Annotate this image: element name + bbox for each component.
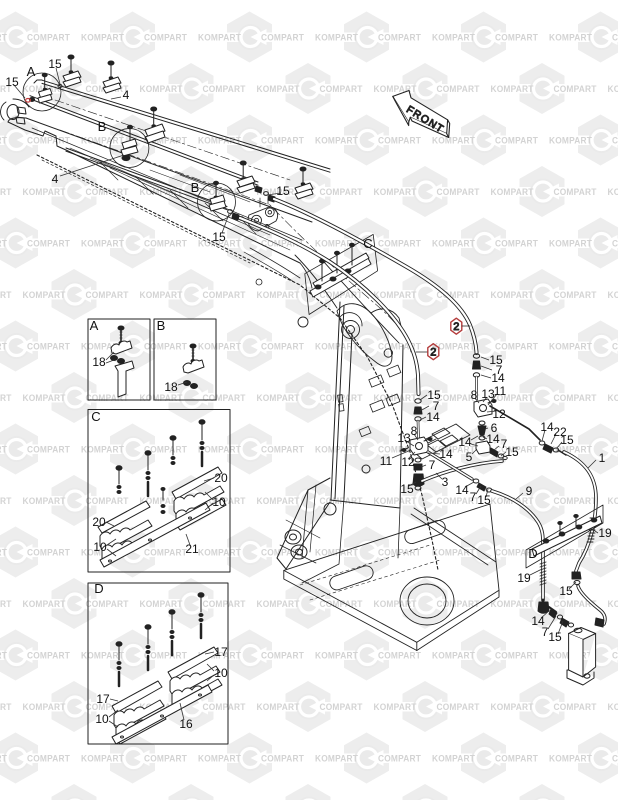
svg-text:8: 8	[471, 388, 478, 402]
svg-text:19: 19	[598, 526, 612, 540]
svg-text:14: 14	[455, 483, 469, 497]
svg-text:19: 19	[517, 571, 531, 585]
svg-text:14: 14	[439, 447, 453, 461]
svg-text:15: 15	[477, 493, 491, 507]
svg-text:20: 20	[92, 515, 106, 529]
svg-text:B: B	[191, 180, 200, 195]
svg-text:7: 7	[470, 490, 477, 504]
svg-text:C: C	[91, 409, 100, 424]
svg-text:2: 2	[453, 321, 459, 333]
svg-text:1: 1	[599, 451, 606, 465]
svg-text:D: D	[94, 581, 103, 596]
svg-text:15: 15	[560, 433, 574, 447]
svg-text:20: 20	[214, 471, 228, 485]
svg-text:B: B	[157, 318, 166, 333]
svg-text:15: 15	[48, 57, 62, 71]
svg-text:4: 4	[123, 88, 130, 102]
svg-text:15: 15	[400, 482, 414, 496]
svg-text:15: 15	[559, 584, 573, 598]
svg-text:18: 18	[164, 380, 178, 394]
svg-text:11: 11	[380, 454, 393, 468]
svg-text:4: 4	[52, 172, 59, 186]
svg-text:2: 2	[430, 347, 436, 359]
svg-text:8: 8	[411, 424, 418, 438]
svg-text:11: 11	[494, 384, 507, 398]
svg-text:14: 14	[426, 410, 440, 424]
svg-text:16: 16	[179, 717, 193, 731]
svg-text:B: B	[98, 119, 107, 134]
svg-text:A: A	[27, 64, 36, 79]
svg-text:10: 10	[95, 712, 109, 726]
svg-text:14: 14	[491, 371, 505, 385]
svg-text:12: 12	[401, 455, 415, 469]
svg-text:D: D	[528, 546, 537, 561]
svg-text:5: 5	[466, 450, 473, 464]
svg-text:12: 12	[492, 407, 506, 421]
svg-text:14: 14	[540, 420, 554, 434]
svg-text:7: 7	[429, 458, 436, 472]
svg-text:18: 18	[92, 355, 106, 369]
svg-text:3: 3	[442, 475, 449, 489]
svg-text:13: 13	[397, 431, 411, 445]
svg-text:10: 10	[212, 495, 226, 509]
svg-text:C: C	[363, 236, 372, 251]
svg-text:17: 17	[96, 692, 110, 706]
svg-text:10: 10	[93, 540, 107, 554]
svg-text:15: 15	[212, 230, 226, 244]
svg-text:21: 21	[185, 542, 199, 556]
svg-text:17: 17	[214, 645, 228, 659]
svg-text:A: A	[90, 318, 99, 333]
svg-text:15: 15	[548, 630, 562, 644]
svg-text:9: 9	[526, 484, 533, 498]
svg-text:15: 15	[505, 445, 519, 459]
svg-text:15: 15	[276, 184, 290, 198]
svg-text:14: 14	[486, 432, 500, 446]
svg-text:10: 10	[214, 666, 228, 680]
svg-text:15: 15	[5, 75, 19, 89]
svg-text:14: 14	[458, 435, 472, 449]
